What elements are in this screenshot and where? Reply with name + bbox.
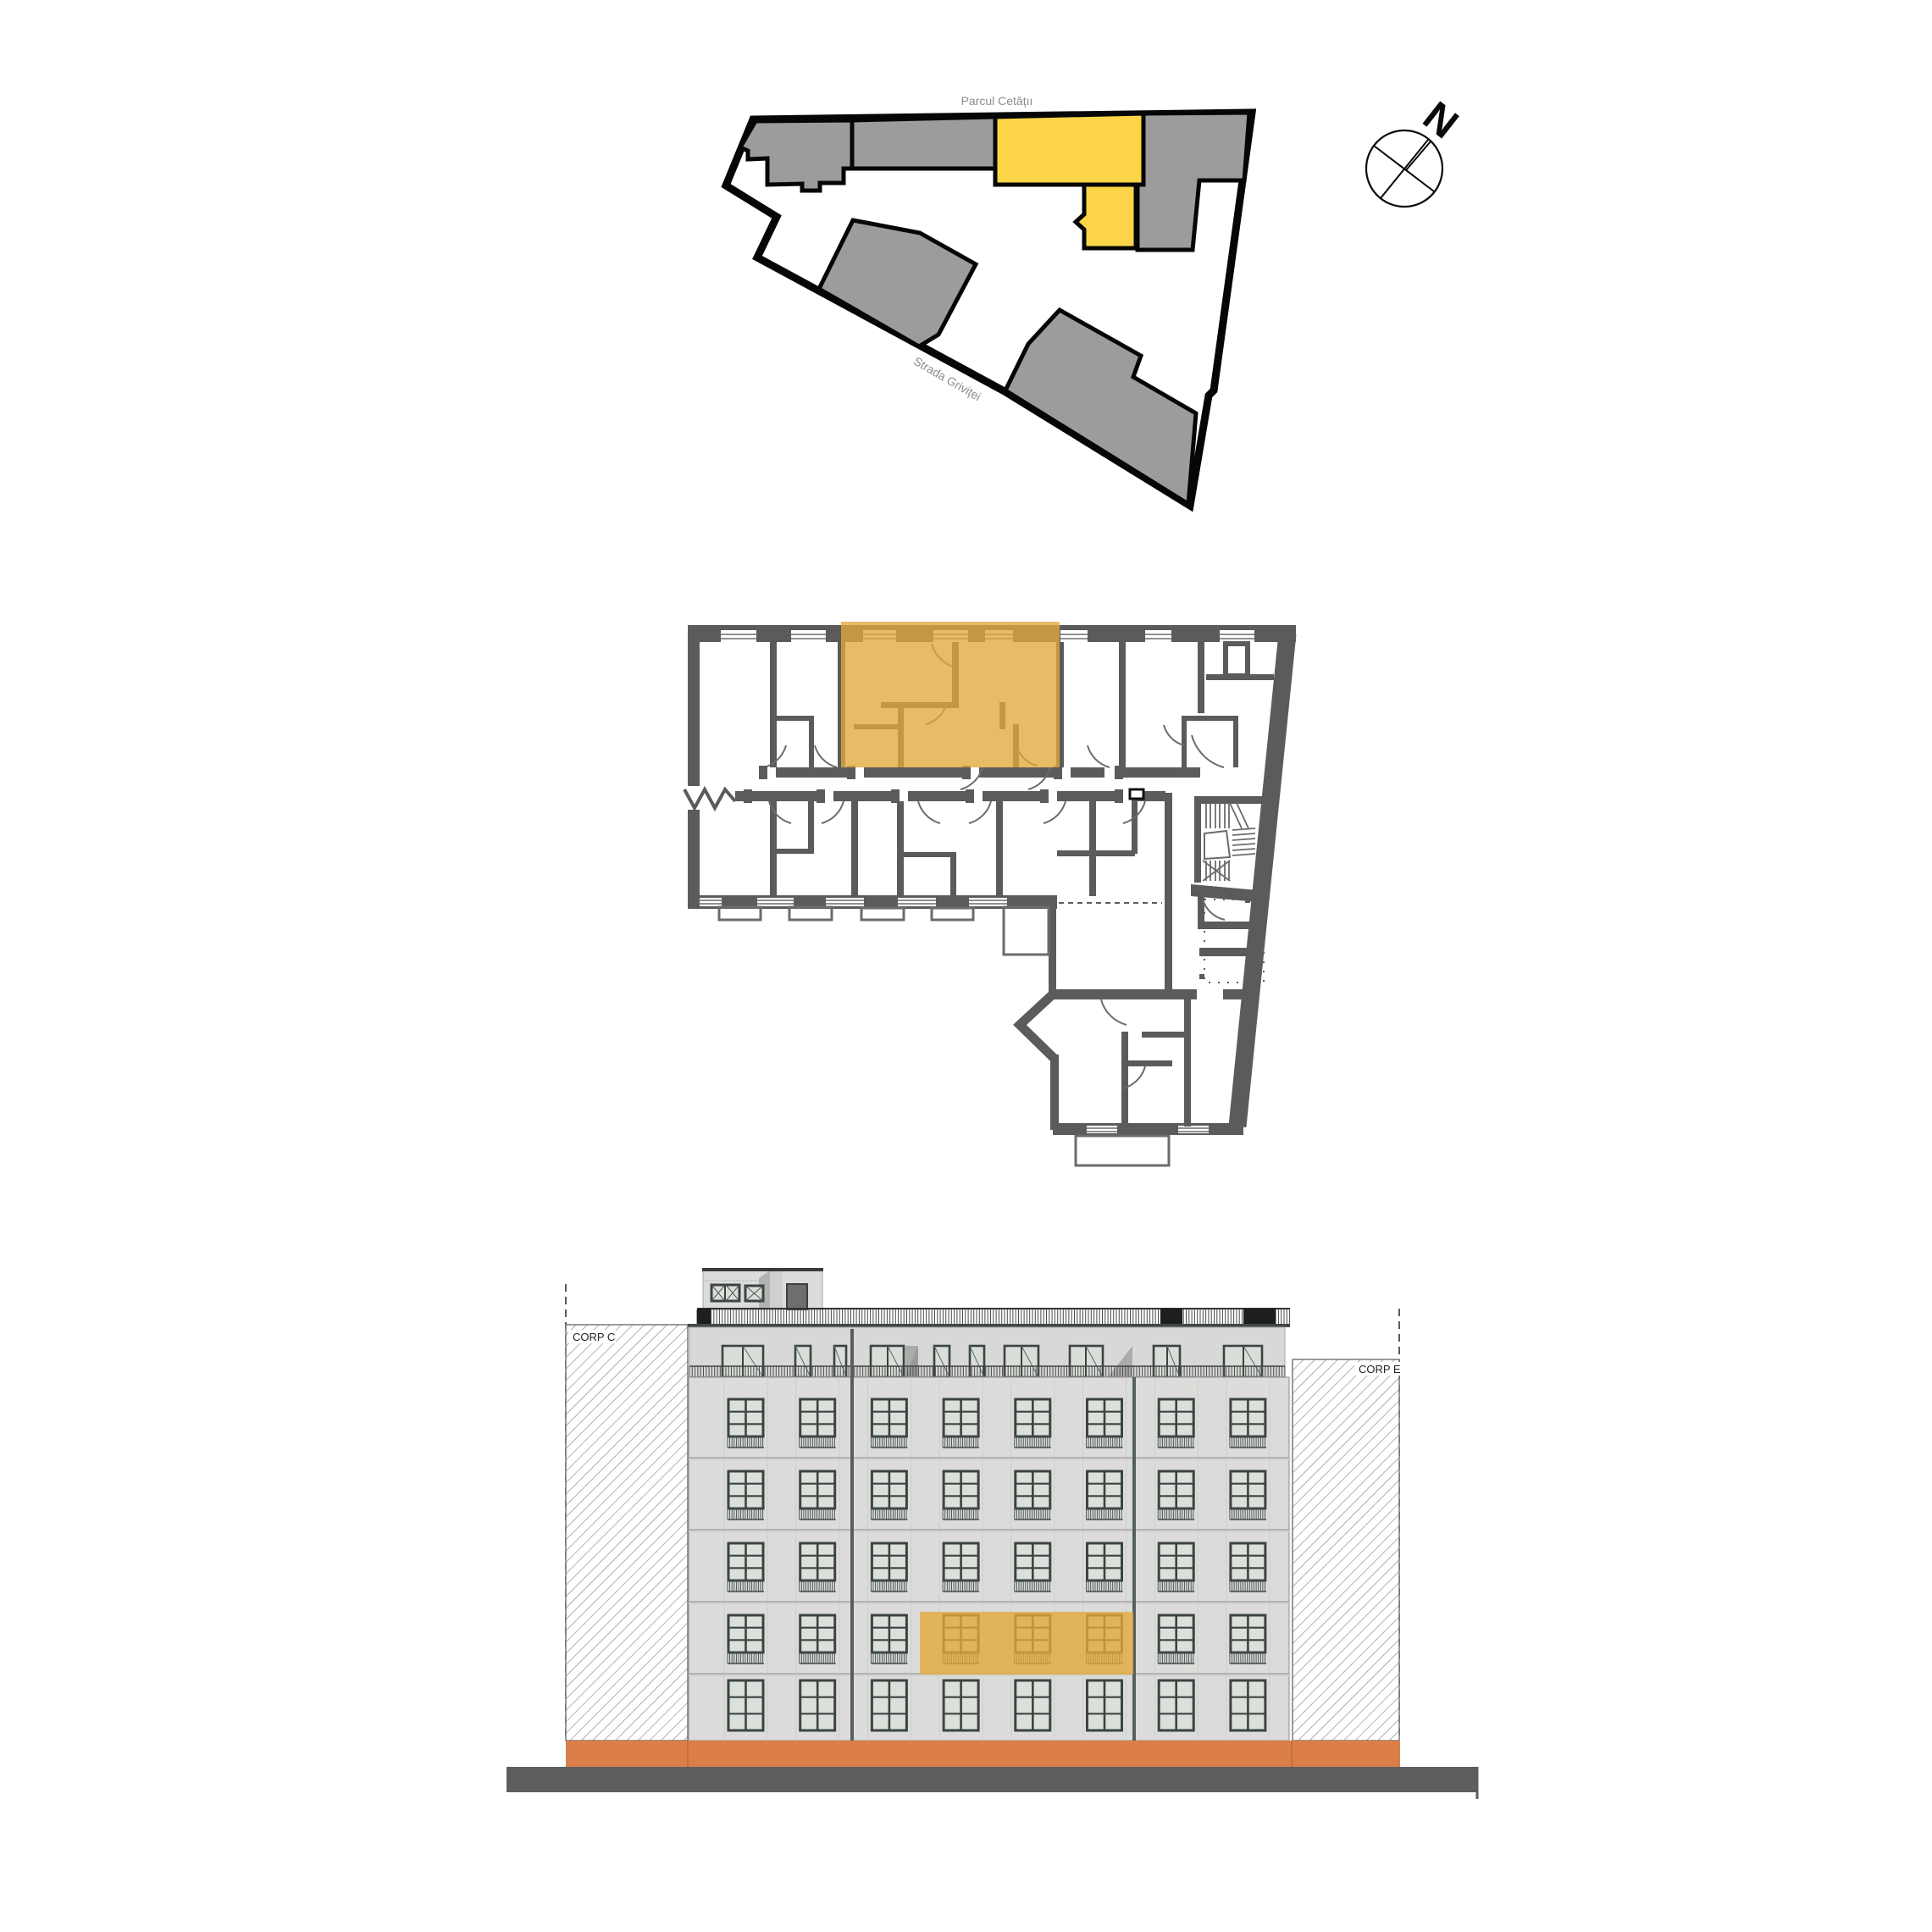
svg-text:CORP C: CORP C	[573, 1331, 615, 1343]
svg-text:CORP E: CORP E	[1359, 1363, 1401, 1376]
svg-text:Parcul Cetățıı: Parcul Cetățıı	[961, 94, 1033, 108]
